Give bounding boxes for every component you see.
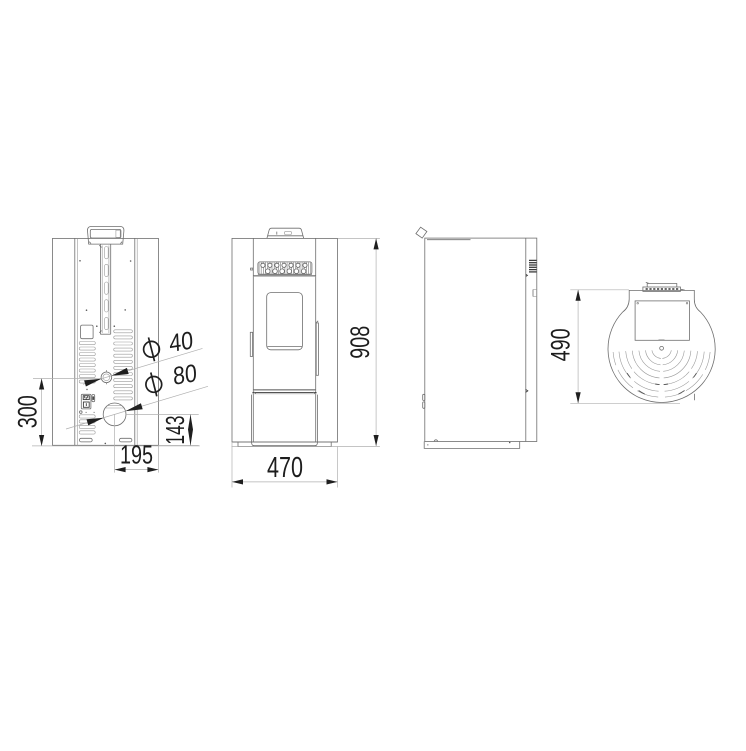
svg-text:195: 195 [120, 440, 153, 470]
svg-text:470: 470 [267, 452, 303, 484]
svg-text:40: 40 [169, 326, 194, 358]
svg-text:80: 80 [172, 359, 197, 391]
svg-text:143: 143 [160, 416, 190, 445]
svg-text:908: 908 [345, 326, 375, 359]
svg-text:490: 490 [546, 328, 576, 361]
svg-text:300: 300 [13, 395, 43, 428]
